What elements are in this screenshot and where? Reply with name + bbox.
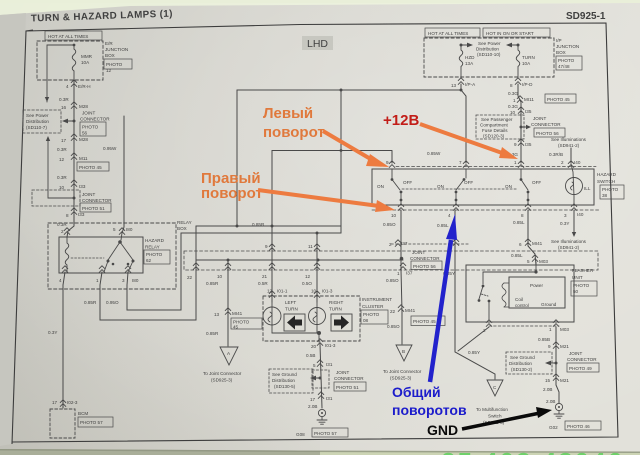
svg-text:0.5O: 0.5O <box>302 281 312 286</box>
svg-text:17: 17 <box>310 397 316 402</box>
svg-text:0.85O: 0.85O <box>383 222 396 227</box>
svg-text:8: 8 <box>66 213 69 218</box>
svg-text:9: 9 <box>514 142 517 147</box>
svg-text:Distribution: Distribution <box>26 119 49 124</box>
svg-text:To Joint Connector: To Joint Connector <box>383 369 422 374</box>
svg-text:MI41: MI41 <box>232 311 243 316</box>
svg-text:PHOTO 45: PHOTO 45 <box>547 97 570 102</box>
svg-text:RELAY: RELAY <box>145 245 160 250</box>
svg-text:ILL: ILL <box>584 186 591 191</box>
svg-text:(SD130-5): (SD130-5) <box>274 384 296 389</box>
svg-text:CLUSTER: CLUSTER <box>362 304 384 309</box>
svg-text:TURN: TURN <box>522 55 535 60</box>
svg-text:0.5R: 0.5R <box>258 281 268 286</box>
svg-text:1: 1 <box>549 327 552 332</box>
svg-text:PHOTO 45: PHOTO 45 <box>79 165 102 170</box>
svg-text:8: 8 <box>521 213 524 218</box>
svg-text:CONNECTOR: CONNECTOR <box>410 256 440 261</box>
svg-text:3: 3 <box>122 278 125 283</box>
svg-text:TURN: TURN <box>329 307 342 312</box>
svg-text:See Passenger: See Passenger <box>481 117 513 122</box>
svg-text:0.85R: 0.85R <box>252 222 265 227</box>
svg-text:1: 1 <box>514 160 517 165</box>
svg-text:E/R-H: E/R-H <box>78 84 91 89</box>
svg-text:Distribution: Distribution <box>272 378 295 383</box>
svg-text:I80: I80 <box>132 278 139 283</box>
svg-text:10: 10 <box>217 274 223 279</box>
svg-text:9: 9 <box>386 160 389 165</box>
svg-text:See Ground: See Ground <box>510 355 535 360</box>
svg-text:10A: 10A <box>522 61 531 66</box>
svg-text:17: 17 <box>52 400 58 405</box>
svg-text:10: 10 <box>59 185 65 190</box>
svg-text:поворот: поворот <box>263 124 325 141</box>
svg-text:G02: G02 <box>549 425 558 430</box>
svg-text:RELAY: RELAY <box>177 220 192 225</box>
svg-text:M03: M03 <box>560 327 569 332</box>
svg-text:HAZARD: HAZARD <box>145 238 165 243</box>
svg-text:ON: ON <box>437 184 444 189</box>
svg-text:2: 2 <box>561 160 564 165</box>
svg-text:0.85O: 0.85O <box>386 278 399 283</box>
svg-text:I40: I40 <box>577 212 584 217</box>
svg-text:PHOTO 57: PHOTO 57 <box>80 420 103 425</box>
svg-text:INSTRUMENT: INSTRUMENT <box>362 297 392 302</box>
svg-text:PHOTO: PHOTO <box>82 125 99 130</box>
svg-text:Compartment: Compartment <box>480 123 509 128</box>
svg-text:I/P: I/P <box>556 38 562 43</box>
svg-text:HAZARD: HAZARD <box>597 172 617 177</box>
svg-text:PHOTO: PHOTO <box>573 283 590 288</box>
svg-text:4: 4 <box>66 84 69 89</box>
svg-text:BOX: BOX <box>177 226 187 231</box>
svg-text:38: 38 <box>602 193 608 198</box>
svg-text:See Illuminations: See Illuminations <box>551 137 587 142</box>
svg-text:I40: I40 <box>574 160 581 165</box>
svg-text:I02-3: I02-3 <box>67 400 78 405</box>
svg-text:3: 3 <box>564 213 567 218</box>
svg-text:50: 50 <box>573 289 579 294</box>
svg-text:Coil: Coil <box>515 297 523 302</box>
svg-text:15: 15 <box>545 378 551 383</box>
svg-text:10A: 10A <box>81 60 90 65</box>
svg-text:control: control <box>515 303 529 308</box>
svg-text:Switch: Switch <box>488 414 502 419</box>
svg-text:I35: I35 <box>525 109 532 114</box>
svg-text:4: 4 <box>448 213 451 218</box>
svg-text:0.5B: 0.5B <box>306 353 315 358</box>
svg-text:PHOTO 45: PHOTO 45 <box>413 319 436 324</box>
svg-text:OFF: OFF <box>464 180 473 185</box>
svg-text:(SD110-10): (SD110-10) <box>477 52 501 57</box>
svg-text:2: 2 <box>389 242 392 247</box>
svg-text:2.0B: 2.0B <box>308 404 317 409</box>
svg-text:E/R: E/R <box>105 41 113 46</box>
svg-text:0.85Y: 0.85Y <box>468 350 480 355</box>
svg-text:JUNCTION: JUNCTION <box>556 44 579 49</box>
svg-text:(SD110-7): (SD110-7) <box>26 125 47 130</box>
svg-text:PHOTO 56: PHOTO 56 <box>536 131 559 136</box>
svg-text:12: 12 <box>59 157 65 162</box>
svg-text:(SD925-3): (SD925-3) <box>390 376 412 381</box>
svg-text:I31: I31 <box>326 362 333 367</box>
svg-text:45: 45 <box>233 325 239 330</box>
svg-text:Ground: Ground <box>541 302 557 307</box>
svg-text:MI41: MI41 <box>532 241 543 246</box>
svg-text:0.95W: 0.95W <box>103 146 117 151</box>
svg-text:OFF: OFF <box>403 180 412 185</box>
svg-text:I80: I80 <box>126 227 133 232</box>
svg-text:(SD925-3): (SD925-3) <box>211 378 233 383</box>
svg-text:13A: 13A <box>465 61 474 66</box>
svg-text:(SD941-2): (SD941-2) <box>558 143 580 148</box>
svg-text:5: 5 <box>527 259 530 264</box>
svg-text:M28: M28 <box>79 104 88 109</box>
svg-text:MMR: MMR <box>81 54 93 59</box>
svg-text:0.3R: 0.3R <box>57 175 67 180</box>
svg-text:I37: I37 <box>401 241 408 246</box>
svg-text:JUNCTION: JUNCTION <box>105 47 128 52</box>
svg-text:9: 9 <box>265 244 268 249</box>
svg-text:To Multifunction: To Multifunction <box>476 407 508 412</box>
svg-text:PHOTO: PHOTO <box>558 58 575 63</box>
svg-text:SD925-1: SD925-1 <box>566 11 606 22</box>
svg-text:HOT IN ON OR START: HOT IN ON OR START <box>486 31 534 36</box>
svg-text:поворот: поворот <box>201 185 263 202</box>
svg-text:TURN: TURN <box>285 307 298 312</box>
svg-text:13: 13 <box>451 83 457 88</box>
svg-text:Distribution: Distribution <box>509 361 532 366</box>
svg-text:PHOTO 56: PHOTO 56 <box>413 264 436 269</box>
svg-text:5: 5 <box>313 363 316 368</box>
svg-text:17: 17 <box>61 138 67 143</box>
svg-text:Общий: Общий <box>392 384 441 400</box>
svg-text:22: 22 <box>187 275 193 280</box>
svg-text:0.3R: 0.3R <box>59 97 69 102</box>
svg-text:UNIT: UNIT <box>572 275 583 280</box>
svg-text:56: 56 <box>82 131 88 136</box>
svg-text:I31: I31 <box>326 396 333 401</box>
svg-text:13: 13 <box>214 312 220 317</box>
svg-text:See Ground: See Ground <box>272 372 297 377</box>
svg-text:B: B <box>402 349 405 354</box>
svg-text:Power: Power <box>530 283 543 288</box>
svg-text:Fuse Details: Fuse Details <box>482 128 508 133</box>
svg-text:M28: M28 <box>79 137 88 142</box>
svg-text:See Illuminations: See Illuminations <box>551 239 587 244</box>
svg-text:5: 5 <box>113 227 116 232</box>
svg-text:1: 1 <box>96 278 99 283</box>
svg-text:(SD120-3): (SD120-3) <box>483 134 505 139</box>
svg-text:M11: M11 <box>79 156 88 161</box>
svg-text:BOX: BOX <box>556 50 566 55</box>
svg-text:0.85L: 0.85L <box>513 220 525 225</box>
svg-text:Левый: Левый <box>263 105 313 122</box>
svg-text:10: 10 <box>311 289 317 294</box>
svg-text:JOINT: JOINT <box>82 111 95 116</box>
svg-text:0.3R/B: 0.3R/B <box>549 152 563 157</box>
svg-text:I37: I37 <box>406 271 413 276</box>
svg-text:CONNECTOR: CONNECTOR <box>334 376 364 381</box>
svg-text:I33: I33 <box>79 184 86 189</box>
svg-text:PHOTO 51: PHOTO 51 <box>82 206 105 211</box>
svg-text:I35: I35 <box>525 142 532 147</box>
svg-text:JOINT: JOINT <box>533 116 546 121</box>
svg-text:0.85R: 0.85R <box>206 281 219 286</box>
svg-text:9: 9 <box>548 344 551 349</box>
svg-text:12: 12 <box>305 274 311 279</box>
svg-text:0.3G: 0.3G <box>508 104 518 109</box>
svg-text:MI11: MI11 <box>524 97 534 102</box>
svg-text:I01-3: I01-3 <box>322 289 333 294</box>
svg-text:I/P-D: I/P-D <box>522 82 533 87</box>
svg-text:20: 20 <box>311 344 317 349</box>
svg-text:JOINT: JOINT <box>412 250 425 255</box>
svg-text:0.3R: 0.3R <box>57 147 67 152</box>
svg-text:M21: M21 <box>560 344 569 349</box>
svg-text:JOINT: JOINT <box>82 192 95 197</box>
svg-text:0.3G: 0.3G <box>508 91 518 96</box>
svg-text:2.0B: 2.0B <box>546 399 555 404</box>
svg-text:I01-3: I01-3 <box>325 343 336 348</box>
svg-text:1: 1 <box>513 98 516 103</box>
svg-text:0.85B: 0.85B <box>538 337 550 342</box>
svg-text:See Power: See Power <box>26 113 49 118</box>
svg-text:FLASHER: FLASHER <box>572 268 594 273</box>
svg-text:0.85R: 0.85R <box>84 300 97 305</box>
svg-text:CONNECTOR: CONNECTOR <box>531 122 561 127</box>
svg-text:PHOTO: PHOTO <box>146 252 163 257</box>
svg-text:4: 4 <box>59 278 62 283</box>
svg-text:PHOTO: PHOTO <box>363 312 380 317</box>
svg-text:SWITCH: SWITCH <box>597 179 615 184</box>
svg-text:47/48: 47/48 <box>558 64 570 69</box>
svg-text:HZD: HZD <box>465 55 475 60</box>
svg-text:HOT AT ALL TIMES: HOT AT ALL TIMES <box>428 31 468 36</box>
svg-text:RIGHT: RIGHT <box>329 300 343 305</box>
svg-text:PHOTO: PHOTO <box>106 62 123 67</box>
svg-text:0.85W: 0.85W <box>427 151 441 156</box>
svg-text:JOINT: JOINT <box>569 351 582 356</box>
svg-text:PHOTO: PHOTO <box>602 187 619 192</box>
svg-text:62: 62 <box>146 258 152 263</box>
svg-text:To Joint Connector: To Joint Connector <box>203 371 242 376</box>
svg-text:Distribution: Distribution <box>476 47 499 52</box>
svg-text:10: 10 <box>391 213 397 218</box>
svg-text:11: 11 <box>308 244 313 249</box>
svg-text:0.95O: 0.95O <box>106 300 119 305</box>
svg-text:CONNECTOR: CONNECTOR <box>567 357 597 362</box>
svg-text:16: 16 <box>61 105 67 110</box>
svg-text:JOINT: JOINT <box>336 370 349 375</box>
svg-text:I33: I33 <box>78 212 85 217</box>
svg-text:(SD130-2): (SD130-2) <box>511 367 533 372</box>
svg-text:12: 12 <box>106 68 112 73</box>
svg-text:0.85L: 0.85L <box>511 253 523 258</box>
svg-text:2: 2 <box>61 229 64 234</box>
svg-text:LEFT: LEFT <box>285 300 296 305</box>
svg-text:HOT AT ALL TIMES: HOT AT ALL TIMES <box>48 34 88 39</box>
svg-text:22: 22 <box>390 309 396 314</box>
svg-text:08: 08 <box>363 318 369 323</box>
svg-text:21: 21 <box>262 274 268 279</box>
svg-text:MI41: MI41 <box>405 308 416 313</box>
svg-text:PHOTO 57: PHOTO 57 <box>314 431 337 436</box>
svg-text:1: 1 <box>397 271 400 276</box>
svg-text:0.3Y: 0.3Y <box>560 221 569 226</box>
svg-text:I/P-A: I/P-A <box>465 82 476 87</box>
svg-text:M03: M03 <box>539 259 548 264</box>
svg-text:ON: ON <box>505 184 512 189</box>
svg-text:0.3Y: 0.3Y <box>48 330 57 335</box>
svg-text:PHOTO 49: PHOTO 49 <box>569 366 592 371</box>
svg-text:0.85R: 0.85R <box>206 331 219 336</box>
svg-text:LHD: LHD <box>307 38 328 50</box>
svg-text:PHOTO 51: PHOTO 51 <box>336 385 359 390</box>
svg-text:M21: M21 <box>560 378 569 383</box>
svg-text:BOX: BOX <box>105 53 115 58</box>
svg-text:поворотов: поворотов <box>392 402 467 418</box>
svg-text:0.85O: 0.85O <box>387 324 400 329</box>
svg-text:PHOTO 46: PHOTO 46 <box>567 424 590 429</box>
svg-text:8: 8 <box>510 83 513 88</box>
svg-text:6: 6 <box>519 242 522 247</box>
svg-text:GND: GND <box>427 422 458 438</box>
svg-text:ON: ON <box>377 184 384 189</box>
svg-text:(SD941-2): (SD941-2) <box>558 245 580 250</box>
svg-text:7: 7 <box>459 160 462 165</box>
svg-text:2.0B: 2.0B <box>543 387 552 392</box>
svg-text:See Power: See Power <box>478 41 501 46</box>
svg-text:CONNECTOR: CONNECTOR <box>82 198 112 203</box>
svg-text:BCM: BCM <box>78 411 88 416</box>
svg-text:10: 10 <box>510 110 516 115</box>
svg-text:0.85L: 0.85L <box>437 223 449 228</box>
svg-text:CONNECTOR: CONNECTOR <box>80 117 110 122</box>
svg-text:G08: G08 <box>296 432 305 437</box>
svg-text:+12В: +12В <box>383 112 419 129</box>
svg-text:OFF: OFF <box>532 180 541 185</box>
svg-text:I01-1: I01-1 <box>277 289 288 294</box>
